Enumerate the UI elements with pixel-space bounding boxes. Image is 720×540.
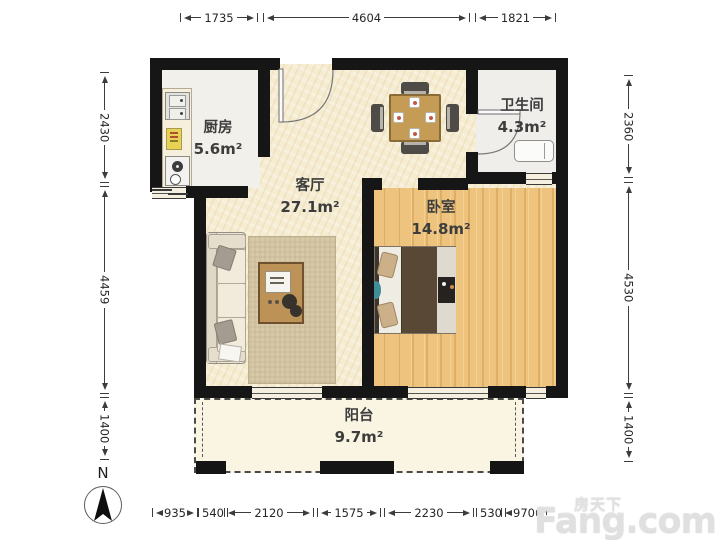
dim-arrow bbox=[303, 510, 313, 516]
dim-left-1: 2430 bbox=[98, 72, 111, 183]
dim-line bbox=[104, 195, 105, 272]
room-area: 27.1m² bbox=[268, 197, 352, 218]
balcony-glass-line bbox=[202, 402, 203, 457]
dim-value: 1400 bbox=[622, 412, 636, 447]
dim-tick bbox=[555, 13, 556, 22]
kitchen-sink bbox=[165, 92, 190, 120]
dim-left-3: 1400 bbox=[98, 397, 111, 460]
balcony-glass-line bbox=[515, 402, 516, 457]
dim-arrow bbox=[545, 15, 555, 21]
dim-arrow bbox=[102, 383, 108, 393]
sofa bbox=[206, 232, 246, 364]
dim-line bbox=[104, 145, 105, 174]
wall bbox=[258, 58, 270, 157]
dim-arrow bbox=[247, 15, 257, 21]
dim-line bbox=[628, 84, 629, 109]
dim-line bbox=[384, 17, 461, 18]
room-area: 5.6m² bbox=[178, 139, 258, 160]
room-label-bathroom: 卫生间 4.3m² bbox=[482, 96, 562, 138]
dim-bottom-2: 540 bbox=[198, 506, 222, 519]
coffee-table-tray bbox=[265, 271, 291, 293]
bathroom-window bbox=[526, 173, 552, 185]
dim-line bbox=[189, 17, 201, 18]
room-area: 4.3m² bbox=[482, 117, 562, 138]
room-label-balcony: 阳台 9.7m² bbox=[316, 406, 402, 448]
coffee-table bbox=[258, 262, 304, 324]
dim-right-2: 4530 bbox=[622, 182, 635, 394]
dim-arrow bbox=[370, 510, 380, 516]
compass-needle-icon bbox=[84, 486, 122, 524]
balcony-pillar bbox=[320, 461, 394, 474]
bathtub bbox=[514, 140, 554, 162]
slider-rail bbox=[168, 193, 188, 195]
dim-line bbox=[628, 306, 629, 385]
dim-value: 2230 bbox=[411, 506, 446, 520]
dim-right-3: 1400 bbox=[622, 397, 635, 462]
dim-arrow bbox=[626, 383, 632, 393]
dining-chair bbox=[446, 104, 459, 132]
bed-pillow bbox=[376, 251, 398, 278]
room-label-kitchen: 厨房 5.6m² bbox=[178, 118, 258, 160]
wall bbox=[466, 58, 478, 114]
wall bbox=[150, 58, 162, 192]
dim-value: 540 bbox=[199, 506, 227, 520]
wall bbox=[546, 386, 568, 398]
dim-tick bbox=[624, 393, 633, 394]
living-balcony-door bbox=[252, 387, 322, 399]
dim-tick bbox=[100, 182, 109, 183]
dim-top-3: 1821 bbox=[475, 11, 556, 24]
compass: N bbox=[82, 464, 124, 532]
dim-tick bbox=[313, 508, 314, 517]
wall bbox=[194, 386, 252, 398]
room-label-bedroom: 卧室 14.8m² bbox=[398, 198, 484, 240]
dim-tick bbox=[100, 459, 109, 460]
bed bbox=[374, 246, 456, 334]
room-label-living: 客厅 27.1m² bbox=[268, 176, 352, 218]
dim-left-2: 4459 bbox=[98, 186, 111, 394]
dining-chair bbox=[401, 141, 429, 154]
compass-north-label: N bbox=[82, 464, 124, 482]
corner-window bbox=[526, 387, 546, 399]
dim-value: 2120 bbox=[251, 506, 286, 520]
dim-arrow bbox=[626, 167, 632, 177]
room-name: 客厅 bbox=[268, 176, 352, 197]
dim-bottom-5: 2230 bbox=[384, 506, 474, 519]
dim-arrow bbox=[102, 449, 108, 459]
room-area: 14.8m² bbox=[398, 219, 484, 240]
room-name: 卧室 bbox=[398, 198, 484, 219]
dim-value: 4459 bbox=[98, 272, 112, 307]
sofa-cushion bbox=[217, 283, 246, 318]
plate bbox=[393, 112, 404, 123]
bedroom-window bbox=[408, 387, 488, 399]
bed-duvet bbox=[401, 247, 439, 333]
dim-arrow bbox=[463, 510, 473, 516]
plate bbox=[409, 97, 420, 108]
slider-rail bbox=[152, 189, 172, 191]
room-name: 阳台 bbox=[316, 406, 402, 427]
stove-burner bbox=[170, 174, 181, 185]
dim-bottom-1: 935 bbox=[152, 506, 196, 519]
dim-tick bbox=[380, 508, 381, 517]
dim-right-1: 2360 bbox=[622, 75, 635, 178]
dim-bottom-6: 530 bbox=[476, 506, 499, 519]
dim-value: 2430 bbox=[98, 110, 112, 145]
plate bbox=[409, 128, 420, 139]
sofa-throw bbox=[218, 344, 242, 363]
dim-tick bbox=[624, 461, 633, 462]
wall bbox=[194, 186, 206, 398]
dim-value: 2360 bbox=[622, 109, 636, 144]
wall bbox=[322, 386, 408, 398]
dim-value: 935 bbox=[161, 506, 189, 520]
stove bbox=[165, 156, 190, 186]
teapot bbox=[290, 305, 302, 317]
balcony-pillar bbox=[490, 461, 524, 474]
bed-tray bbox=[438, 277, 455, 303]
dim-arrow bbox=[626, 451, 632, 461]
wall bbox=[418, 178, 468, 190]
dim-line bbox=[393, 512, 411, 513]
floor-plan-canvas: 厨房 5.6m² 卫生间 4.3m² 客厅 27.1m² 卧室 14.8m² 阳… bbox=[0, 0, 720, 540]
dim-line bbox=[484, 17, 498, 18]
dim-value: 1400 bbox=[98, 411, 112, 446]
dim-arrow bbox=[187, 510, 197, 516]
dim-tick bbox=[257, 13, 258, 22]
dim-value: 1575 bbox=[331, 506, 366, 520]
dim-value: 1821 bbox=[498, 11, 533, 25]
stove-burner bbox=[172, 161, 183, 172]
wall bbox=[332, 58, 568, 70]
plate bbox=[425, 112, 436, 123]
dim-bottom-3: 2120 bbox=[224, 506, 314, 519]
dim-top-1: 1735 bbox=[180, 11, 258, 24]
dim-top-2: 4604 bbox=[263, 11, 470, 24]
dim-tick bbox=[624, 177, 633, 178]
dim-line bbox=[628, 144, 629, 169]
watermark-cn: 房天下 bbox=[574, 493, 622, 514]
dim-line bbox=[272, 17, 349, 18]
dim-line bbox=[233, 512, 251, 513]
dim-arrow bbox=[459, 15, 469, 21]
room-area: 9.7m² bbox=[316, 427, 402, 448]
wall bbox=[362, 178, 374, 398]
dim-value: 4604 bbox=[349, 11, 384, 25]
watermark-logo: Fang.com bbox=[534, 501, 716, 540]
wall bbox=[488, 386, 526, 398]
dim-tick bbox=[469, 13, 470, 22]
balcony-pillar bbox=[196, 461, 226, 474]
room-name: 卫生间 bbox=[482, 96, 562, 117]
sink-basin bbox=[169, 95, 186, 107]
dim-line bbox=[104, 308, 105, 385]
dim-value: 4530 bbox=[622, 270, 636, 305]
room-name: 厨房 bbox=[178, 118, 258, 139]
outside-area bbox=[148, 198, 194, 408]
dim-arrow bbox=[102, 172, 108, 182]
dining-chair bbox=[371, 104, 384, 132]
bed-pillow bbox=[376, 301, 398, 328]
cups bbox=[268, 300, 272, 304]
dim-bottom-4: 1575 bbox=[317, 506, 381, 519]
dim-tick bbox=[473, 508, 474, 517]
dim-tick bbox=[100, 393, 109, 394]
dim-line bbox=[104, 81, 105, 110]
dim-value: 1735 bbox=[201, 11, 236, 25]
watermark: 房天下 Fang.com bbox=[534, 506, 716, 536]
wall bbox=[466, 172, 526, 184]
dim-line bbox=[628, 191, 629, 270]
